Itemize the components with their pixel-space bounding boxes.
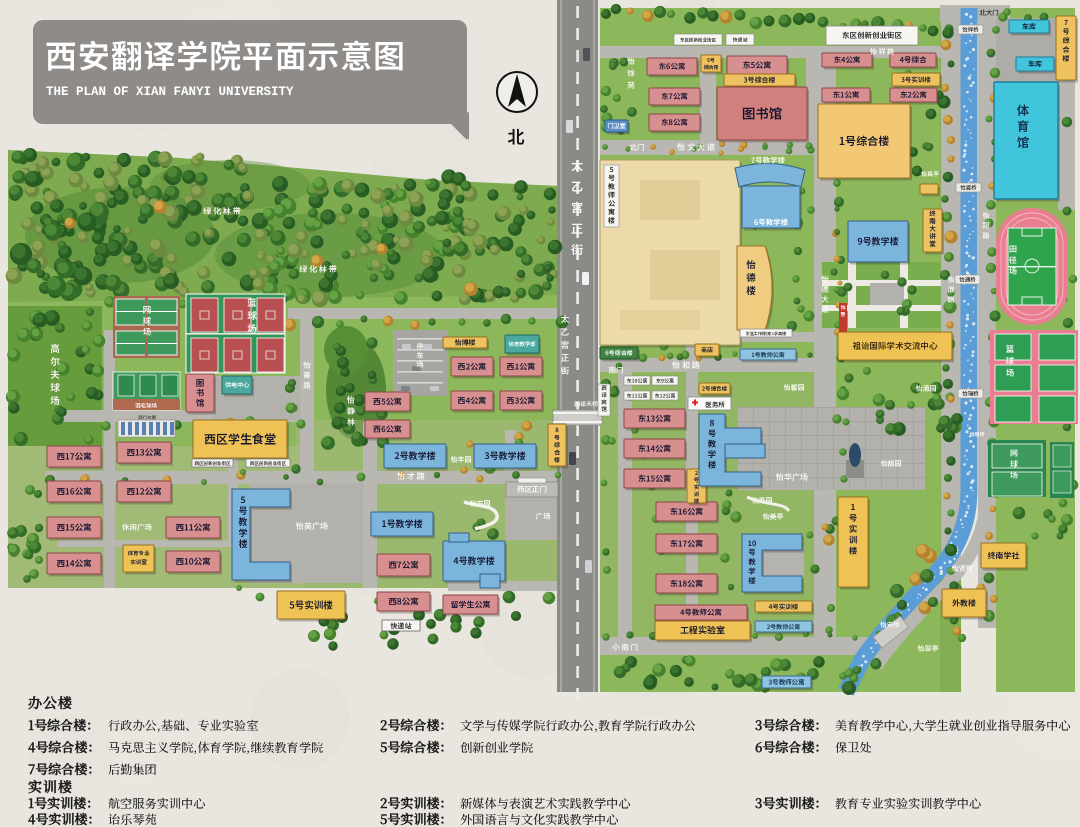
svg-text:3号综合楼：: 3号综合楼：: [755, 715, 827, 734]
svg-text:田: 田: [1009, 244, 1017, 255]
svg-text:正: 正: [560, 352, 570, 364]
svg-text:行政办公,基础、专业实验室: 行政办公,基础、专业实验室: [107, 717, 259, 734]
svg-text:球: 球: [1006, 355, 1015, 367]
svg-text:场: 场: [246, 321, 257, 335]
svg-text:3号实训楼: 3号实训楼: [901, 74, 931, 84]
svg-text:6号教学楼: 6号教学楼: [754, 217, 788, 228]
svg-text:怡博楼: 怡博楼: [455, 338, 476, 348]
svg-text:怡祥桥: 怡祥桥: [962, 26, 979, 34]
svg-text:1号综合楼: 1号综合楼: [839, 133, 889, 149]
svg-text:北: 北: [508, 123, 525, 148]
svg-text:馆: 馆: [601, 405, 607, 413]
svg-text:7号教学楼: 7号教学楼: [751, 155, 785, 166]
svg-text:道: 道: [821, 304, 829, 315]
svg-text:祖诒国际学术交流中心: 祖诒国际学术交流中心: [852, 340, 937, 352]
svg-text:怡: 怡: [983, 211, 990, 221]
svg-text:外国语言与文化实践教学中心: 外国语言与文化实践教学中心: [460, 811, 618, 827]
svg-text:广场: 广场: [536, 511, 551, 522]
svg-text:东2公寓: 东2公寓: [900, 90, 927, 101]
svg-text:堂: 堂: [929, 238, 936, 248]
svg-text:怡 文 大 道: 怡 文 大 道: [677, 142, 714, 153]
svg-text:场: 场: [49, 393, 60, 407]
svg-text:西4公寓: 西4公寓: [458, 395, 487, 406]
svg-text:楼: 楼: [848, 545, 858, 557]
svg-text:西5公寓: 西5公寓: [373, 396, 402, 407]
svg-text:东12公寓: 东12公寓: [654, 393, 677, 400]
svg-text:路: 路: [982, 231, 990, 241]
svg-text:终南学社: 终南学社: [987, 550, 1020, 561]
svg-text:怡英广场: 怡英广场: [296, 521, 328, 532]
svg-text:文学与传媒学院行政办公,教育学院行政办公: 文学与传媒学院行政办公,教育学院行政办公: [460, 717, 696, 734]
svg-text:北门: 北门: [630, 142, 645, 153]
svg-text:3号教师公寓: 3号教师公寓: [768, 677, 805, 687]
svg-text:西1公寓: 西1公寓: [507, 361, 536, 372]
svg-text:西15公寓: 西15公寓: [56, 522, 91, 534]
svg-text:东14公寓: 东14公寓: [638, 443, 671, 454]
svg-text:车库: 车库: [1028, 60, 1042, 70]
svg-text:办公楼: 办公楼: [28, 693, 73, 713]
svg-text:怡: 怡: [627, 56, 635, 67]
svg-text:5号实训楼: 5号实训楼: [289, 597, 333, 611]
svg-text:楼: 楼: [237, 537, 247, 550]
svg-text:东7公寓: 东7公寓: [661, 91, 688, 102]
svg-text:怡 祥 路: 怡 祥 路: [870, 47, 894, 57]
svg-text:苑: 苑: [627, 80, 635, 91]
svg-text:自行车棚: 自行车棚: [138, 414, 156, 421]
svg-text:场: 场: [417, 360, 425, 370]
svg-text:乙: 乙: [571, 178, 583, 195]
svg-text:楼: 楼: [748, 576, 756, 587]
svg-text:滨: 滨: [948, 285, 955, 295]
svg-text:创新创业学院: 创新创业学院: [460, 739, 533, 756]
svg-text:东11公寓: 东11公寓: [626, 393, 649, 400]
svg-text:5号实训楼：: 5号实训楼：: [380, 809, 452, 827]
svg-text:西安翻译学院平面示意图: 西安翻译学院平面示意图: [45, 32, 406, 78]
svg-text:翔: 翔: [983, 221, 990, 231]
svg-text:6号综合楼：: 6号综合楼：: [755, 737, 827, 756]
svg-text:门卫室: 门卫室: [607, 121, 625, 130]
svg-text:绿 化 林 带: 绿 化 林 带: [203, 206, 240, 217]
svg-text:西3公寓: 西3公寓: [507, 395, 536, 406]
svg-text:尔: 尔: [49, 354, 60, 368]
svg-text:教育专业实验实训教学中心: 教育专业实验实训教学中心: [835, 795, 981, 812]
svg-text:西8公寓: 西8公寓: [388, 596, 418, 608]
svg-text:3号综合楼: 3号综合楼: [743, 76, 775, 86]
svg-text:保卫处: 保卫处: [835, 739, 872, 756]
svg-text:西6公寓: 西6公寓: [373, 424, 402, 435]
svg-text:西区创新创业街区: 西区创新创业街区: [194, 460, 231, 467]
svg-text:东16公寓: 东16公寓: [670, 506, 703, 517]
svg-text:东18公寓: 东18公寓: [670, 578, 703, 589]
svg-text:供电中心: 供电中心: [225, 380, 250, 389]
svg-text:楼: 楼: [608, 216, 615, 226]
svg-text:东13公寓: 东13公寓: [638, 413, 671, 424]
svg-text:馀: 馀: [627, 68, 635, 79]
svg-text:西区创新创业街区: 西区创新创业街区: [249, 460, 286, 467]
svg-text:怡: 怡: [746, 257, 757, 271]
svg-text:静: 静: [347, 406, 355, 417]
svg-text:西17公寓: 西17公寓: [56, 451, 91, 463]
svg-text:1号教师公寓: 1号教师公寓: [751, 350, 784, 359]
svg-text:南门: 南门: [609, 365, 624, 376]
svg-text:休闲广场: 休闲广场: [122, 522, 152, 533]
svg-text:怡清园: 怡清园: [916, 384, 937, 394]
svg-text:怡渡桥: 怡渡桥: [960, 184, 977, 192]
svg-text:球: 球: [246, 308, 257, 322]
svg-text:7号综合楼：: 7号综合楼：: [28, 759, 100, 778]
svg-text:2号综合楼：: 2号综合楼：: [380, 715, 452, 734]
svg-text:美育教学中心,大学生就业创业指导服务中心: 美育教学中心,大学生就业创业指导服务中心: [835, 717, 1071, 734]
svg-text:怡安桥: 怡安桥: [880, 619, 900, 629]
svg-text:小 南 门: 小 南 门: [611, 642, 638, 653]
svg-text:东9公寓: 东9公寓: [655, 378, 675, 385]
svg-text:2号教师公寓: 2号教师公寓: [767, 622, 800, 631]
svg-text:太: 太: [571, 157, 584, 174]
svg-text:诒乐琴苑: 诒乐琴苑: [108, 811, 158, 827]
svg-text:留学生公寓: 留学生公寓: [451, 599, 491, 610]
svg-text:体育教学部: 体育教学部: [508, 340, 536, 348]
svg-text:怡 才 路: 怡 才 路: [397, 471, 425, 482]
svg-text:德: 德: [746, 270, 756, 284]
svg-text:东10公寓: 东10公寓: [626, 378, 649, 385]
svg-text:4号实训楼：: 4号实训楼：: [28, 809, 100, 827]
svg-text:怡 和 路: 怡 和 路: [672, 360, 700, 371]
svg-text:快递站: 快递站: [391, 622, 412, 632]
svg-text:街: 街: [561, 365, 570, 377]
svg-text:球: 球: [1010, 459, 1018, 470]
svg-text:学生工作楼(部):求真楼: 学生工作楼(部):求真楼: [746, 331, 786, 337]
svg-text:网: 网: [1010, 448, 1019, 459]
svg-text:东区创新创业街区: 东区创新创业街区: [842, 30, 902, 41]
svg-text:西12公寓: 西12公寓: [126, 486, 161, 498]
svg-text:西11公寓: 西11公寓: [175, 522, 210, 534]
svg-text:东6公寓: 东6公寓: [659, 61, 686, 72]
svg-text:后勤集团: 后勤集团: [108, 761, 157, 778]
svg-text:怡华广场: 怡华广场: [776, 472, 808, 483]
svg-text:西区正门: 西区正门: [517, 484, 547, 495]
svg-text:工程实验室: 工程实验室: [680, 624, 725, 637]
svg-text:3号实训楼：: 3号实训楼：: [755, 793, 827, 812]
svg-text:新媒体与表演艺术实践教学中心: 新媒体与表演艺术实践教学中心: [460, 795, 631, 812]
svg-text:乙: 乙: [561, 326, 570, 338]
svg-text:绿 化 林 带: 绿 化 林 带: [299, 264, 336, 275]
svg-text:篮: 篮: [247, 295, 257, 309]
svg-text:街: 街: [571, 241, 583, 258]
svg-text:东8公寓: 东8公寓: [661, 117, 688, 128]
svg-text:怡贤院: 怡贤院: [952, 564, 973, 574]
svg-text:场: 场: [1006, 367, 1015, 379]
svg-text:马克思主义学院,体育学院,继续教育学院: 马克思主义学院,体育学院,继续教育学院: [108, 739, 323, 756]
svg-text:怡丰园: 怡丰园: [451, 455, 472, 465]
svg-text:图书馆: 图书馆: [742, 102, 783, 122]
svg-text:高: 高: [50, 341, 60, 355]
svg-text:篮: 篮: [1006, 343, 1015, 355]
svg-text:怡瑞桥: 怡瑞桥: [962, 390, 979, 398]
svg-text:楼: 楼: [554, 455, 561, 464]
svg-text:车库: 车库: [1022, 22, 1036, 32]
svg-text:西14公寓: 西14公寓: [56, 558, 91, 570]
svg-text:怡真亭: 怡真亭: [921, 169, 939, 178]
svg-text:怡: 怡: [948, 275, 955, 285]
svg-text:综合楼: 综合楼: [702, 64, 719, 71]
svg-text:1号教学楼: 1号教学楼: [381, 517, 422, 530]
svg-text:2号综合楼: 2号综合楼: [702, 384, 728, 392]
svg-text:怡美亭: 怡美亭: [763, 512, 784, 522]
svg-text:东5公寓: 东5公寓: [743, 60, 772, 71]
svg-text:东4公寓: 东4公寓: [834, 55, 861, 66]
svg-text:怡翠亭: 怡翠亭: [918, 644, 939, 654]
svg-text:4号综合: 4号综合: [900, 55, 927, 66]
svg-text:体育专业: 体育专业: [127, 549, 150, 557]
svg-text:西16公寓: 西16公寓: [56, 486, 91, 498]
svg-text:楼: 楼: [746, 283, 756, 297]
svg-text:馆: 馆: [196, 397, 205, 409]
svg-text:航空服务实训中心: 航空服务实训中心: [108, 795, 206, 812]
svg-text:4号教师公寓: 4号教师公寓: [680, 607, 722, 618]
svg-text:快递站: 快递站: [732, 37, 747, 44]
svg-text:怡方园: 怡方园: [470, 499, 491, 509]
svg-text:馆: 馆: [1017, 132, 1030, 151]
svg-text:3号教学楼: 3号教学楼: [484, 449, 525, 462]
svg-text:东17公寓: 东17公寓: [670, 538, 703, 549]
svg-text:楼: 楼: [694, 497, 700, 505]
svg-text:西译天桥: 西译天桥: [574, 399, 598, 408]
svg-text:场: 场: [1010, 470, 1018, 481]
svg-text:慧: 慧: [840, 311, 845, 318]
svg-text:场: 场: [143, 326, 152, 338]
svg-text:东1公寓: 东1公寓: [833, 90, 860, 101]
svg-text:西区学生食堂: 西区学生食堂: [204, 430, 276, 447]
svg-text:林: 林: [347, 417, 355, 428]
svg-text:东区创新创业街区: 东区创新创业街区: [680, 37, 716, 44]
svg-text:西13公寓: 西13公寓: [126, 447, 161, 459]
svg-text:4号教学楼: 4号教学楼: [453, 554, 494, 567]
svg-text:怡通桥: 怡通桥: [959, 276, 976, 284]
svg-text:径: 径: [1009, 255, 1017, 266]
svg-text:9号教学楼: 9号教学楼: [857, 235, 898, 248]
svg-text:羽毛球场: 羽毛球场: [135, 402, 158, 410]
svg-text:实训室: 实训室: [130, 558, 147, 566]
svg-text:医务所: 医务所: [705, 399, 725, 409]
svg-text:北大门: 北大门: [979, 7, 999, 17]
svg-text:4号实训楼: 4号实训楼: [769, 601, 799, 611]
svg-text:怡韻园: 怡韻园: [881, 459, 902, 469]
svg-text:宫: 宫: [571, 199, 583, 216]
svg-text:东15公寓: 东15公寓: [638, 473, 671, 484]
svg-text:楼: 楼: [707, 459, 717, 471]
svg-text:球: 球: [49, 380, 60, 394]
svg-text:怡: 怡: [347, 395, 355, 406]
svg-text:西10公寓: 西10公寓: [175, 556, 210, 568]
svg-text:5号: 5号: [707, 57, 715, 64]
svg-text:场: 场: [1009, 266, 1017, 277]
svg-text:1号综合楼：: 1号综合楼：: [28, 715, 99, 734]
svg-text:路: 路: [947, 295, 955, 305]
svg-text:夫: 夫: [50, 367, 60, 381]
svg-text:6号综合楼: 6号综合楼: [605, 348, 633, 357]
svg-text:THE PLAN OF XIAN FANYI UNIVERS: THE PLAN OF XIAN FANYI UNIVERSITY: [46, 85, 294, 99]
svg-text:2号教学楼: 2号教学楼: [394, 449, 435, 462]
svg-text:路: 路: [302, 380, 311, 391]
svg-text:商店: 商店: [701, 345, 714, 354]
svg-text:怡瑞桥: 怡瑞桥: [969, 431, 985, 438]
svg-text:4号综合楼：: 4号综合楼：: [28, 737, 100, 756]
svg-text:宫: 宫: [561, 339, 570, 351]
svg-text:外教楼: 外教楼: [952, 598, 976, 609]
svg-text:怡馨园: 怡馨园: [784, 383, 805, 393]
svg-text:5号综合楼：: 5号综合楼：: [380, 737, 452, 756]
svg-text:楼: 楼: [1063, 54, 1070, 64]
svg-text:西2公寓: 西2公寓: [458, 361, 487, 372]
svg-text:太: 太: [561, 313, 570, 325]
svg-text:正: 正: [571, 220, 583, 237]
svg-text:西7公寓: 西7公寓: [388, 559, 418, 571]
